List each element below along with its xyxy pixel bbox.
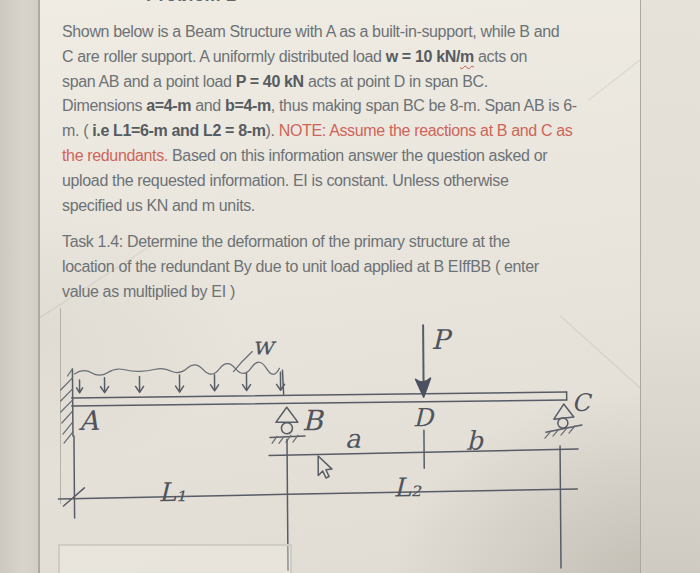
screenshot-root: Problem 2 Shown below is a Beam Structur… <box>0 0 700 573</box>
support-label-a: A <box>78 405 100 436</box>
mouse-cursor-icon <box>318 456 332 478</box>
distributed-load: w <box>74 331 284 396</box>
a-extension-line <box>74 436 75 518</box>
w-leader-line <box>233 352 252 372</box>
beam-diagram: w P <box>0 0 700 573</box>
answer-input-box[interactable] <box>58 544 292 573</box>
support-label-b: B <box>302 404 325 437</box>
support-label-c: C <box>572 389 593 417</box>
dim-label-a: a <box>345 424 361 454</box>
dimension-line-l1-l2 <box>58 489 577 499</box>
roller-support-b <box>270 407 305 443</box>
point-load-label: P <box>431 324 453 355</box>
udl-label: w <box>252 331 277 360</box>
dim-label-l1: L₁ <box>158 477 186 507</box>
point-label-d: D <box>413 403 435 432</box>
udl-arrows <box>76 372 284 393</box>
dim-label-b: b <box>466 426 484 456</box>
dim-label-l2: L₂ <box>393 472 422 502</box>
point-load-arrow: P <box>415 324 454 397</box>
c-extension-line <box>560 446 561 568</box>
